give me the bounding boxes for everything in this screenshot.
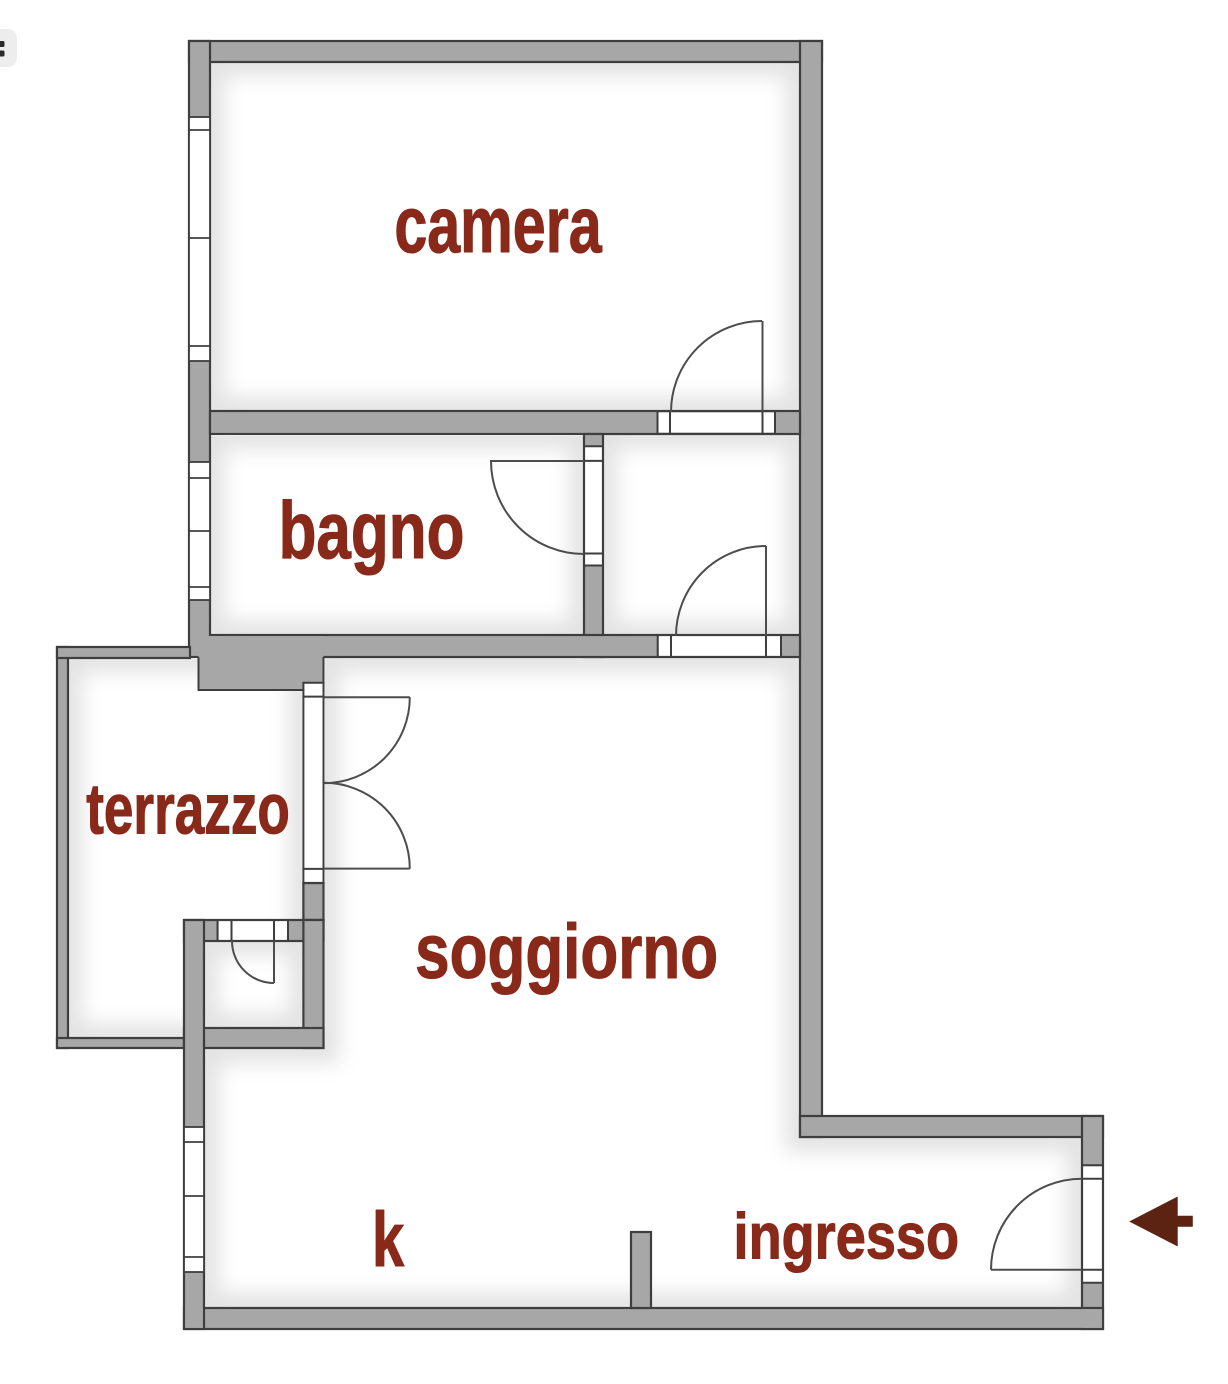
- svg-text:ingresso: ingresso: [734, 1200, 959, 1273]
- svg-text:soggiorno: soggiorno: [415, 908, 718, 994]
- svg-text:camera: camera: [394, 179, 602, 269]
- svg-text:terrazzo: terrazzo: [86, 770, 290, 849]
- svg-text:bagno: bagno: [279, 486, 465, 576]
- svg-text:k: k: [372, 1197, 404, 1283]
